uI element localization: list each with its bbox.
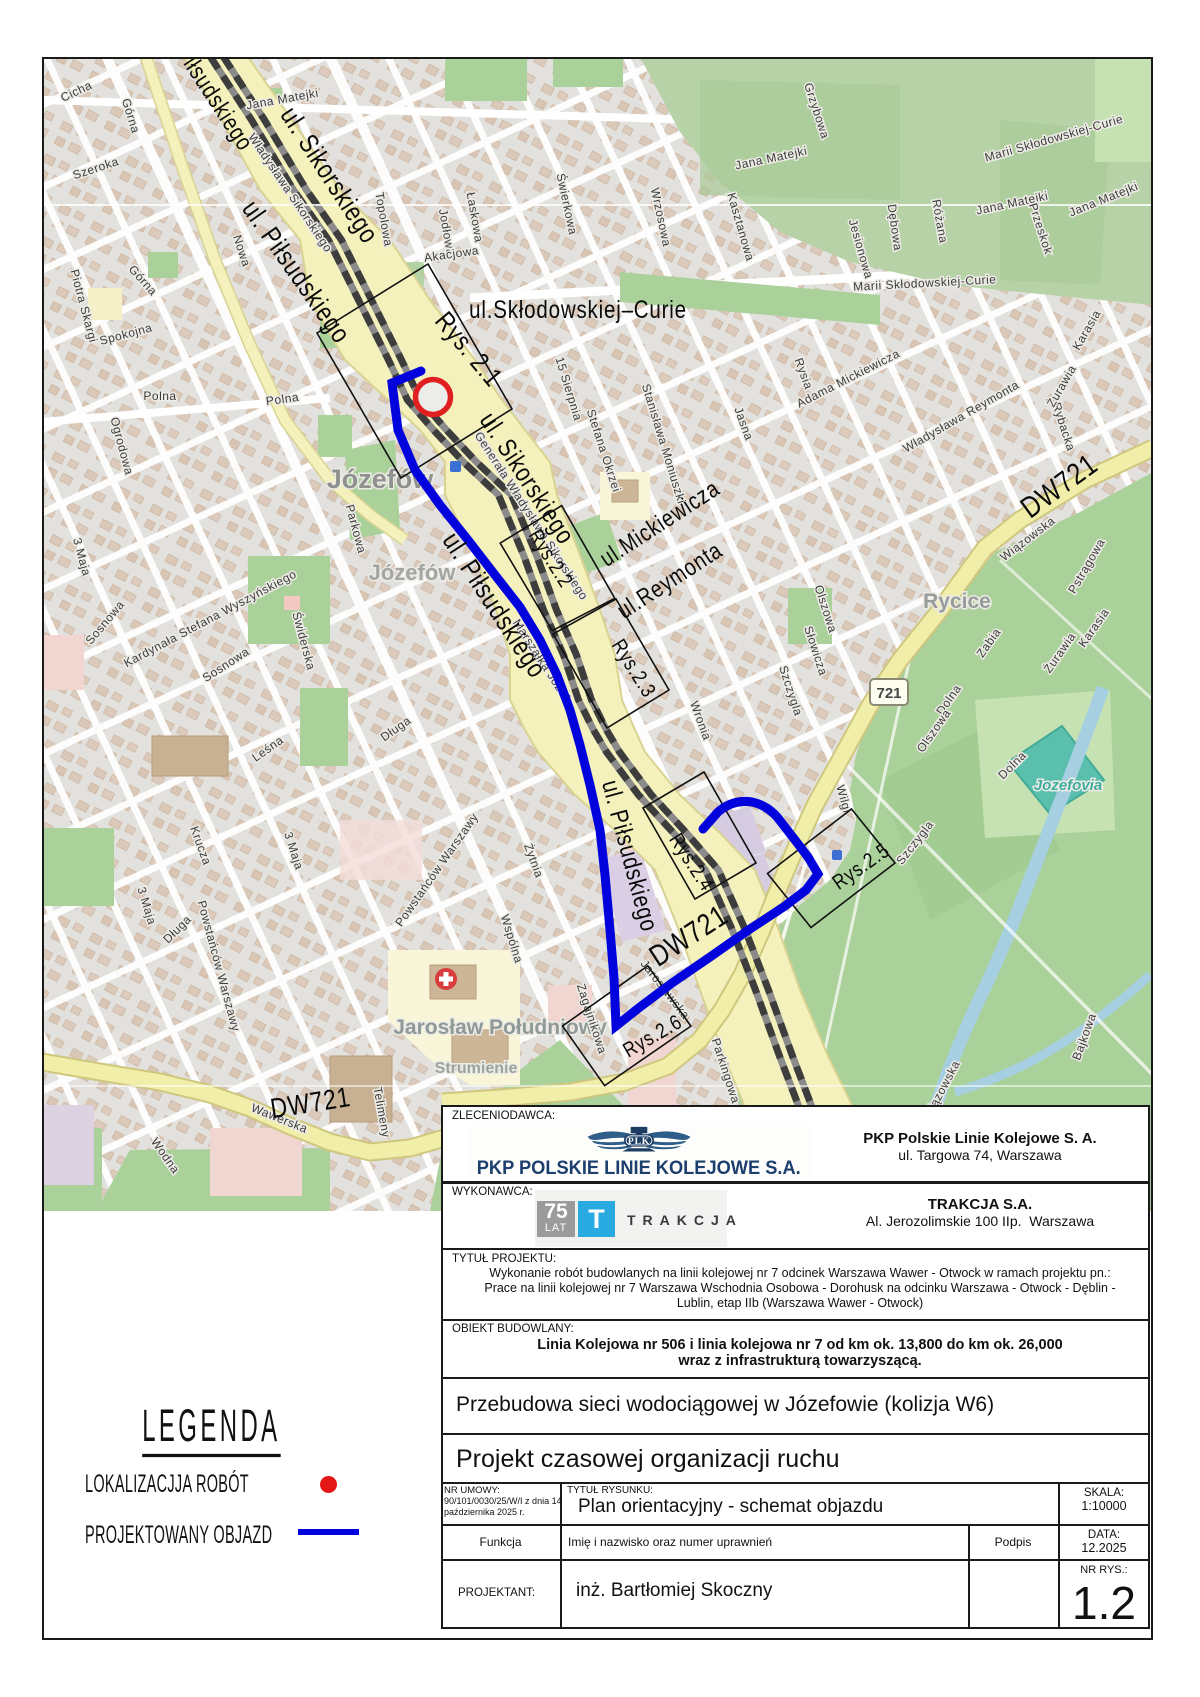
svg-text:PLK: PLK <box>628 1137 650 1147</box>
